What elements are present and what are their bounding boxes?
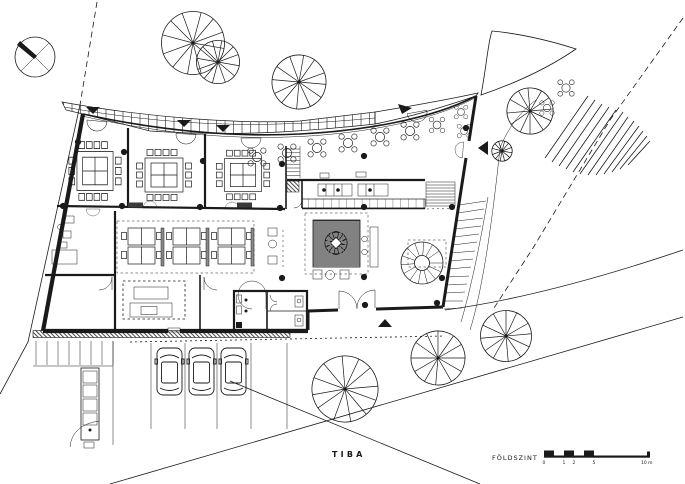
column-dot [200, 158, 206, 164]
door-swing [86, 120, 107, 132]
column-dot [463, 125, 469, 131]
firm-logo: TIBA [332, 450, 366, 459]
column-dot [75, 139, 81, 145]
column-dot [361, 274, 367, 280]
open-office [117, 221, 283, 273]
desk-cluster [122, 228, 162, 264]
tree-icon [303, 347, 388, 432]
door-swing [454, 141, 463, 158]
column-dot [449, 204, 455, 210]
floor-label: FÖLDSZINT [492, 453, 538, 462]
desk-cluster [167, 228, 207, 264]
main-entrance [339, 290, 375, 309]
cafe-table [454, 105, 468, 119]
titleblock: TIBA FÖLDSZINT 0 1 2 5 10 m [332, 450, 653, 466]
entrance-arrow-icon [398, 104, 412, 114]
pergola-canopy [62, 31, 576, 133]
cafe-table [371, 128, 389, 146]
entrance-arrows [86, 104, 488, 327]
cafe-table [308, 139, 326, 157]
scale-tick: 5 [593, 460, 596, 466]
scale-tick: 2 [573, 460, 576, 466]
column-dot [119, 203, 125, 209]
cafe-table [429, 117, 444, 132]
column-dot [60, 203, 66, 209]
planting-hatch [545, 96, 650, 175]
column-dot [121, 149, 127, 155]
tree-icon [403, 323, 472, 392]
door-swing [241, 138, 261, 148]
cafe-table [558, 80, 574, 96]
storage-shed [81, 368, 99, 448]
interior-stair [426, 182, 462, 209]
tree-icon [261, 44, 336, 119]
scale-bar: 0 1 2 5 10 m [543, 451, 653, 467]
column-dot [279, 161, 285, 167]
car-icon [155, 348, 184, 395]
cafe-table [401, 122, 419, 140]
door-swing [86, 209, 100, 216]
column-dot [362, 302, 368, 308]
studio-rooms [123, 275, 217, 330]
planted-court [305, 213, 378, 280]
column-dot [361, 204, 367, 210]
kitchen-servery [286, 146, 462, 209]
drawing-sheet: TIBA FÖLDSZINT 0 1 2 5 10 m [0, 0, 685, 484]
door-swing [175, 133, 196, 144]
column-dot [197, 204, 203, 210]
desk-cluster [212, 228, 252, 264]
column-dot [361, 153, 367, 159]
column-dot [439, 275, 445, 281]
car-icon [187, 348, 216, 395]
scale-tick: 0 [543, 460, 546, 466]
north-arrow-icon [15, 37, 55, 77]
wc-block [234, 281, 307, 330]
building [43, 31, 576, 332]
cafe-table [339, 134, 357, 152]
tree-icon [502, 83, 559, 140]
lounge-corner [268, 228, 283, 268]
conference-table [137, 150, 192, 201]
scale-tick: 1 [563, 460, 566, 466]
column-dot [434, 300, 440, 306]
parking-area [33, 331, 290, 449]
column-dot [277, 205, 283, 211]
entrance-arrow-icon [478, 141, 488, 155]
column-dot [279, 275, 285, 281]
car-icon [219, 348, 248, 395]
entrance-arrow-icon [378, 319, 392, 327]
scale-tick: 10 m [641, 460, 653, 466]
columns [60, 125, 469, 308]
floor-plan-canvas: TIBA FÖLDSZINT 0 1 2 5 10 m [0, 0, 685, 484]
